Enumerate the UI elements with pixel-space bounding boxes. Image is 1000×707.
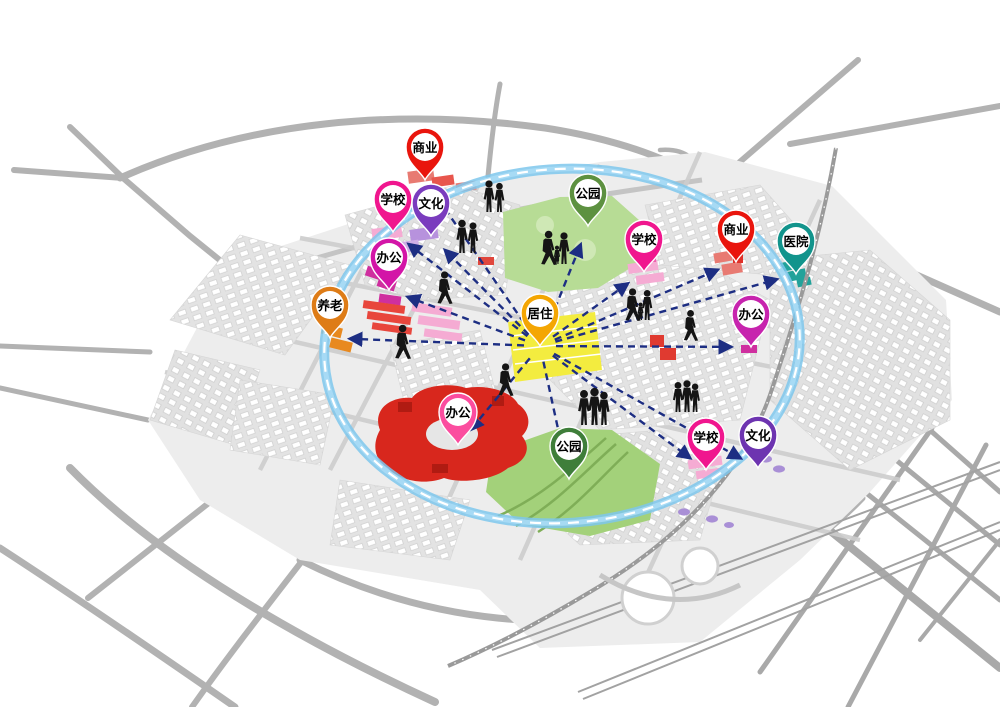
- pin-label-park-top: 公园: [575, 186, 600, 201]
- pin-label-residence: 居住: [527, 306, 553, 321]
- person-silhouette-trio: [673, 380, 700, 412]
- pin-label-school-topright: 学校: [631, 232, 657, 247]
- pin-label-office-bottom: 办公: [445, 405, 471, 420]
- pin-label-hospital-right: 医院: [783, 234, 809, 249]
- pin-label-eldercare-left: 养老: [316, 298, 343, 313]
- pin-label-park-bottom: 公园: [556, 439, 581, 454]
- pin-label-commerce-top: 商业: [412, 140, 438, 155]
- pin-label-school-topleft: 学校: [380, 192, 406, 207]
- city-diagram-canvas: 商业学校文化办公养老居住公园学校商业医院办公办公公园学校文化: [0, 0, 1000, 707]
- pin-label-culture-bottomright: 文化: [745, 428, 771, 443]
- person-silhouette-trio: [578, 388, 609, 425]
- pin-label-school-bottomright: 学校: [693, 430, 719, 445]
- urban-plan-diagram: 商业学校文化办公养老居住公园学校商业医院办公办公公园学校文化: [0, 0, 1000, 707]
- pin-label-culture-topleft: 文化: [418, 196, 444, 211]
- pin-label-office-right: 办公: [738, 307, 764, 322]
- pin-label-office-left: 办公: [376, 250, 402, 265]
- pin-label-commerce-right: 商业: [723, 222, 749, 237]
- connection-arrow-office-right: [556, 346, 731, 347]
